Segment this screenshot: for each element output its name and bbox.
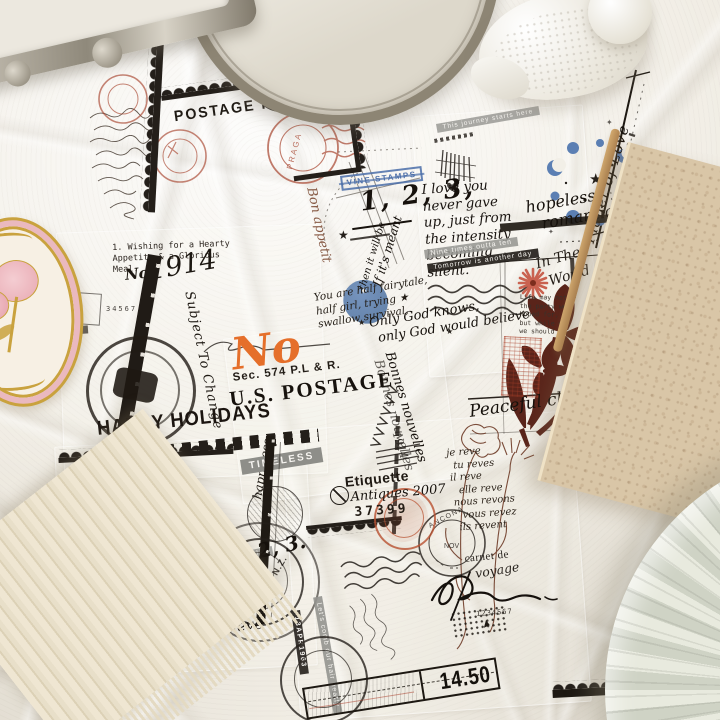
cameo-scroll-ornament: [0, 369, 46, 394]
star-icon: ★: [338, 228, 349, 243]
cancellation-waves-bottom: [340, 551, 424, 592]
craft-stamps-photo-scene: ANCONA NOV: [0, 0, 720, 720]
red-hatch-box: [501, 336, 542, 398]
ruler-divider: [419, 671, 425, 699]
star-icon: ★: [194, 448, 201, 457]
sparkle-icon: ✦: [606, 118, 613, 127]
no-orange-script: No: [228, 320, 304, 380]
digits-34567: 34567: [106, 305, 137, 313]
cameo-scroll-ornament: [0, 230, 34, 255]
reve-conjugation-block: je reve tu reves il reve elle reve nous …: [446, 443, 518, 535]
nov-text: NOV: [444, 543, 460, 550]
price-1450: 14.50: [438, 660, 493, 695]
